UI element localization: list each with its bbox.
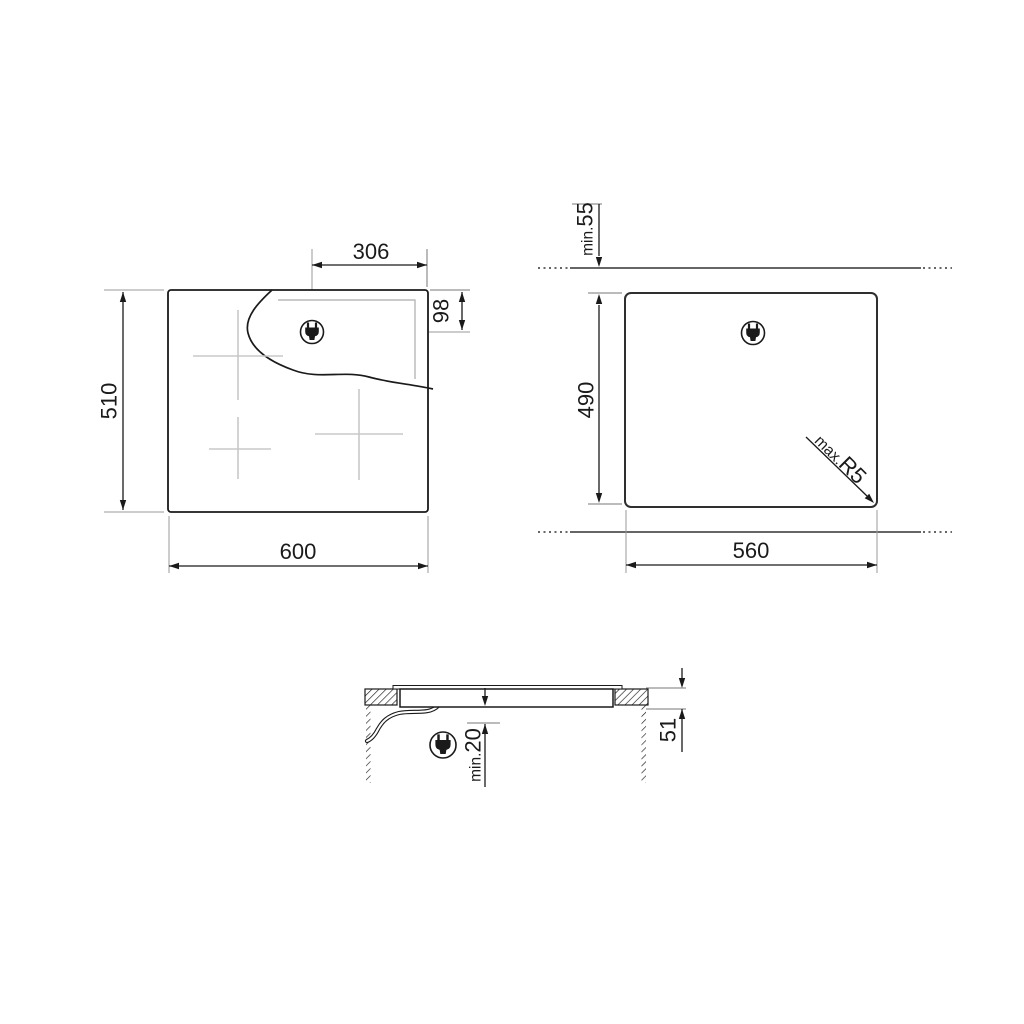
dim-label-height: 510 [97, 383, 122, 420]
dim-label-cutout-width: 560 [733, 538, 770, 563]
dim-label-width: 600 [280, 539, 317, 564]
cabinet-panel-left [366, 705, 371, 783]
side-view: min.20 51 [365, 668, 686, 787]
hob-top-outline [168, 290, 428, 512]
dim-label-plug-vertical: 98 [429, 299, 454, 323]
cabinet-panel-right [642, 705, 647, 783]
power-plug-icon [301, 321, 324, 344]
front-view: 306 98 510 600 [97, 239, 470, 573]
worktop-section-left [365, 689, 397, 705]
worktop-section-right [615, 689, 648, 705]
installation-diagram-page: 306 98 510 600 min.55 [0, 0, 1024, 1024]
power-plug-icon [742, 322, 765, 345]
dim-label-cutout-height: 490 [574, 382, 599, 419]
dim-label-built-in-height: 51 [656, 718, 681, 742]
hob-installation-drawing: 306 98 510 600 min.55 [0, 0, 1024, 1024]
extension-lines-plug [427, 249, 470, 290]
dim-label-plug-horizontal: 306 [353, 239, 390, 264]
dim-label-bottom-clearance: min.20 [461, 728, 486, 782]
power-plug-icon [430, 732, 456, 758]
hob-body [400, 689, 613, 707]
cutout-view: min.55 490 560 max.R5 [538, 202, 952, 573]
dim-label-wall-clearance: min.55 [573, 202, 598, 256]
